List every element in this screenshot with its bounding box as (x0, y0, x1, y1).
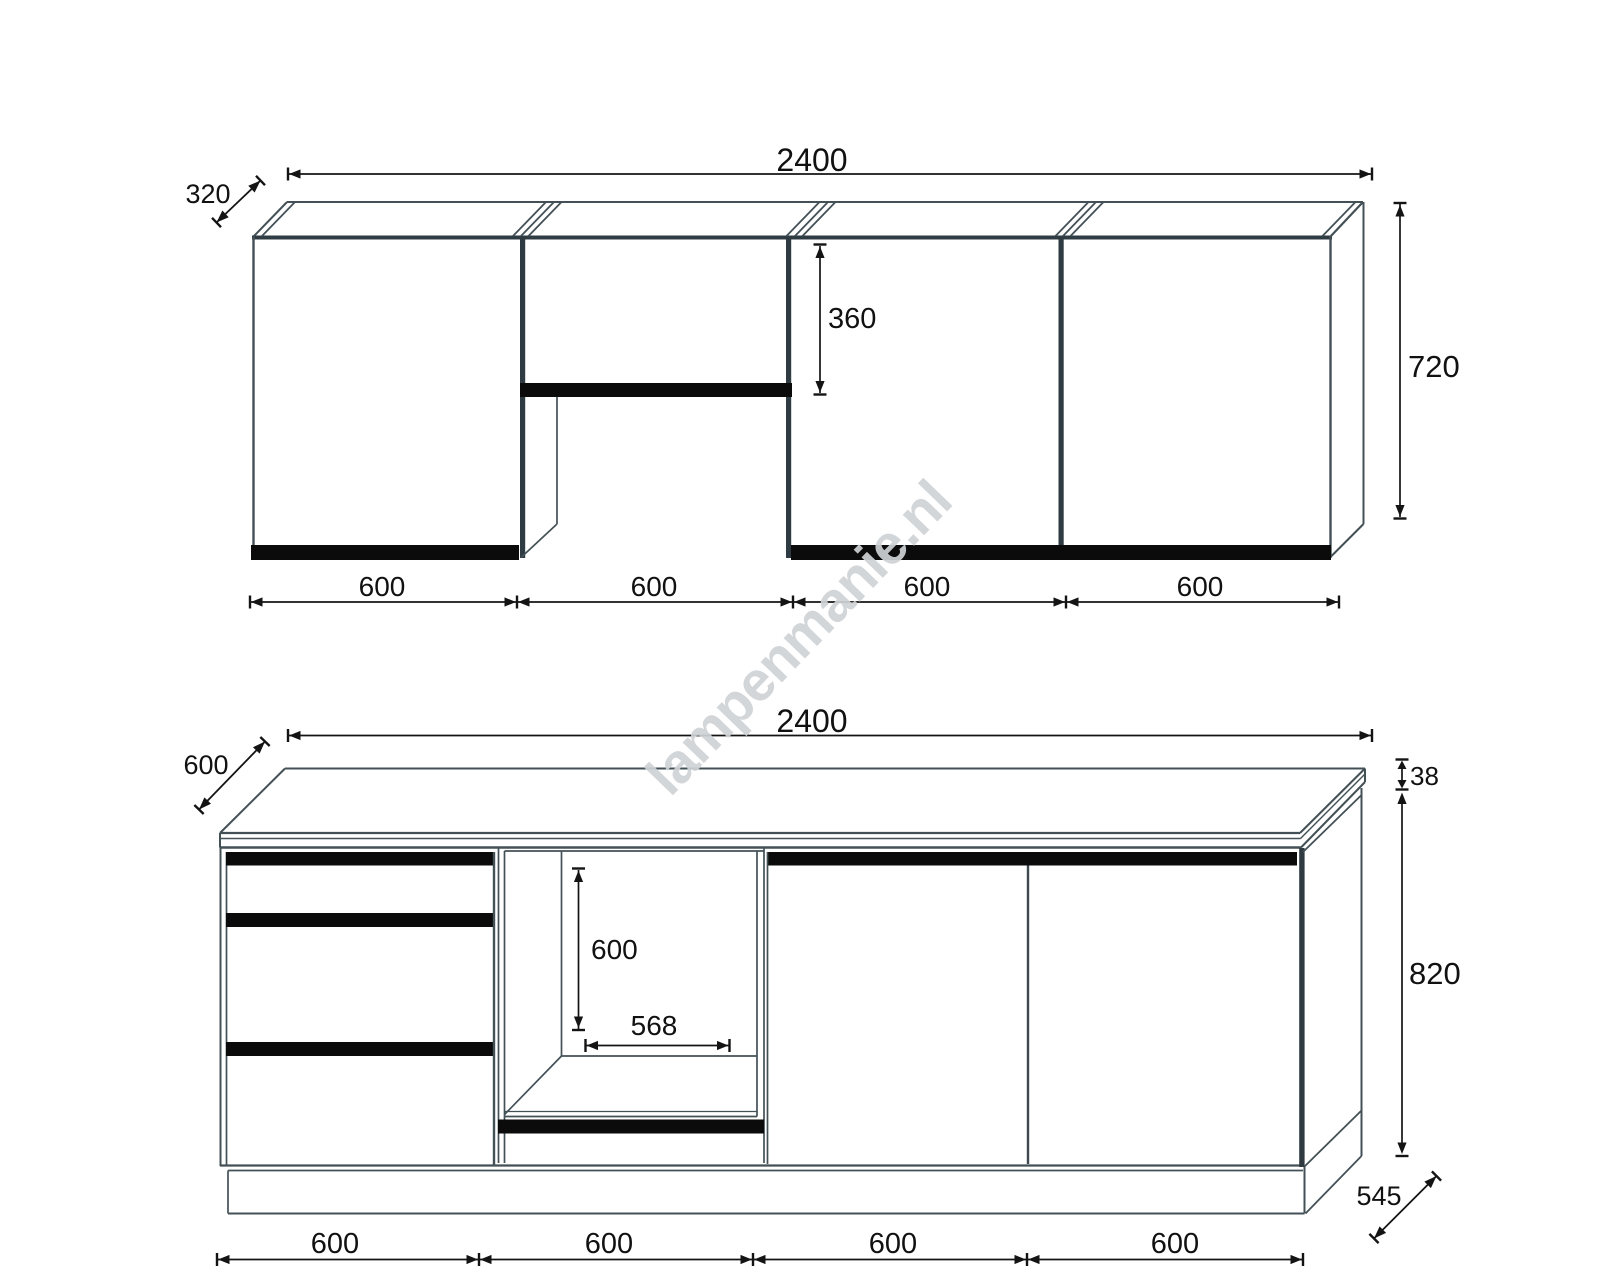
svg-text:360: 360 (828, 303, 876, 335)
svg-text:600: 600 (591, 934, 638, 965)
svg-text:600: 600 (311, 1228, 359, 1260)
svg-text:600: 600 (183, 750, 228, 780)
svg-text:2400: 2400 (776, 703, 847, 739)
svg-text:720: 720 (1408, 349, 1460, 384)
svg-text:38: 38 (1410, 761, 1439, 791)
svg-text:820: 820 (1409, 956, 1461, 991)
svg-text:320: 320 (185, 179, 230, 209)
svg-text:600: 600 (359, 571, 406, 602)
svg-text:600: 600 (585, 1228, 633, 1260)
svg-text:600: 600 (1151, 1228, 1199, 1260)
svg-text:600: 600 (904, 571, 951, 602)
svg-text:545: 545 (1356, 1181, 1401, 1211)
svg-text:568: 568 (631, 1010, 678, 1041)
svg-text:600: 600 (631, 571, 678, 602)
svg-text:600: 600 (869, 1228, 917, 1260)
svg-text:2400: 2400 (776, 142, 847, 178)
svg-text:600: 600 (1177, 571, 1224, 602)
